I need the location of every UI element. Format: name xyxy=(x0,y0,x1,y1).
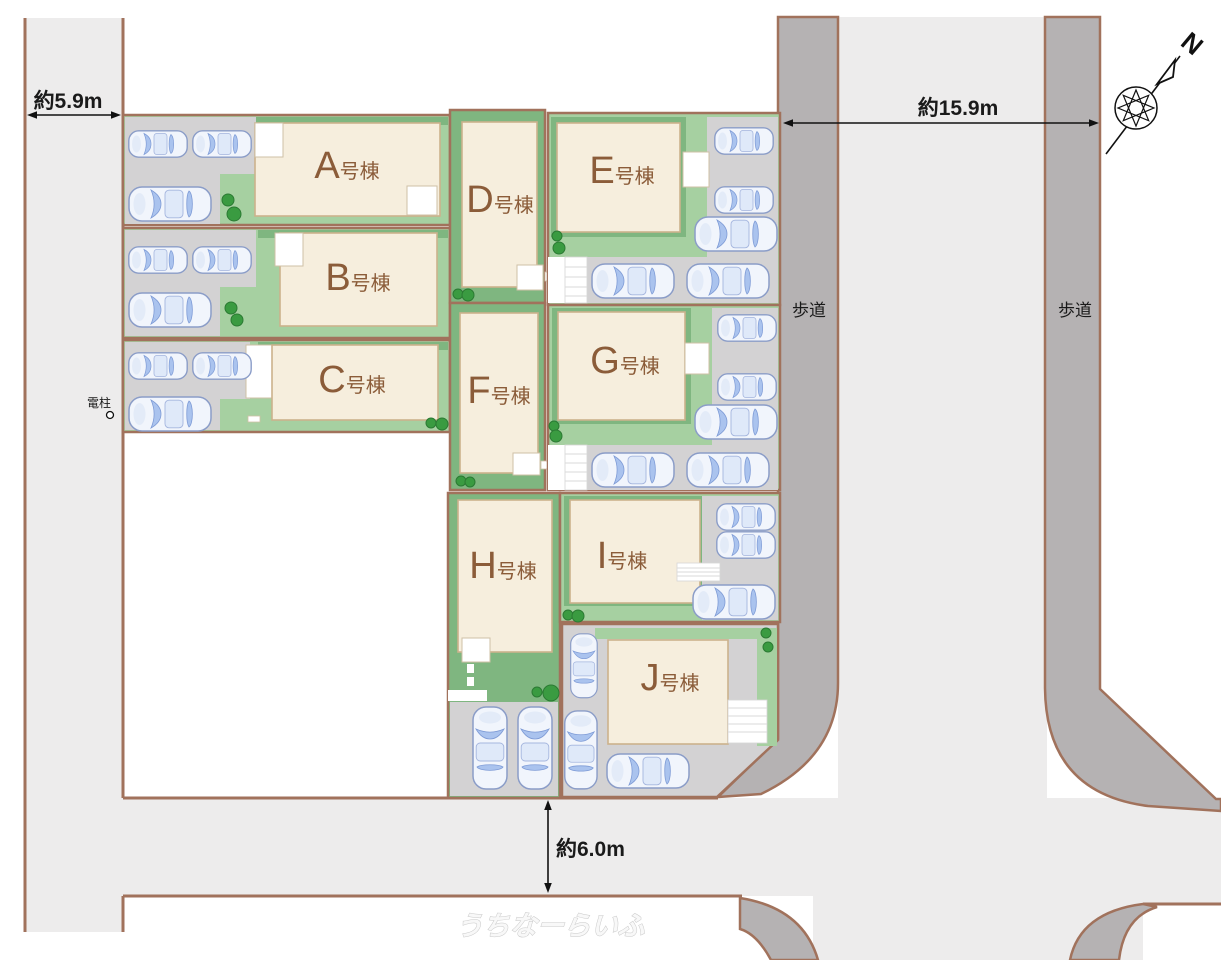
lot-c: C号棟 xyxy=(123,340,450,432)
lot-a: A号棟 xyxy=(123,115,450,225)
tree-icon xyxy=(761,628,771,638)
car-icon xyxy=(717,532,775,558)
tree-icon xyxy=(563,610,573,620)
walkway-step xyxy=(467,664,474,673)
car-icon xyxy=(193,131,251,157)
tree-icon xyxy=(222,194,234,206)
car-icon xyxy=(473,707,507,789)
entrance-porch xyxy=(462,638,490,662)
tree-icon xyxy=(225,302,237,314)
utility-pole-marker xyxy=(107,412,114,419)
car-icon xyxy=(693,585,775,619)
tree-icon xyxy=(532,687,542,697)
lot-g: G号棟 xyxy=(548,305,780,490)
tree-icon xyxy=(543,685,559,701)
car-icon xyxy=(129,187,211,221)
car-icon xyxy=(129,247,187,273)
car-icon xyxy=(695,405,777,439)
walkway-pad xyxy=(448,690,487,701)
driveway xyxy=(548,445,565,490)
watermark-text: うちなーらいふ xyxy=(455,911,646,941)
tree-icon xyxy=(552,231,562,241)
car-icon xyxy=(129,131,187,157)
car-icon xyxy=(695,217,777,251)
north-label: N xyxy=(1175,26,1209,61)
car-icon xyxy=(717,504,775,530)
tree-icon xyxy=(550,430,562,442)
tree-icon xyxy=(227,207,241,221)
utility-pole-label: 電柱 xyxy=(87,395,111,410)
car-icon xyxy=(129,353,187,379)
car-icon xyxy=(129,397,211,431)
tree-icon xyxy=(572,610,584,622)
lot-d: D号棟 xyxy=(450,110,557,303)
car-icon xyxy=(715,187,773,213)
entrance-steps xyxy=(565,257,587,303)
road-left xyxy=(25,18,123,932)
entrance-porch xyxy=(513,453,540,475)
sidewalk-corner-southwest xyxy=(740,898,818,960)
car-icon xyxy=(718,315,776,341)
entrance-porch xyxy=(255,123,283,157)
car-icon xyxy=(718,374,776,400)
road-right-carriageway xyxy=(838,17,1047,960)
entrance-porch xyxy=(275,233,303,266)
sidewalk-label-right: 歩道 xyxy=(1058,301,1092,320)
entrance-step xyxy=(248,416,260,422)
compass-circle xyxy=(1115,87,1157,129)
entrance-steps xyxy=(677,563,720,581)
lot-j: J号棟 xyxy=(562,624,778,797)
road-bottom xyxy=(123,798,1221,896)
car-icon xyxy=(129,293,211,327)
car-icon xyxy=(193,247,251,273)
dimension-label: 約5.9m xyxy=(34,89,103,113)
lawn-strip xyxy=(595,628,777,639)
tree-icon xyxy=(553,242,565,254)
tree-icon xyxy=(453,289,463,299)
north-compass: N xyxy=(1106,26,1209,154)
compass-flag xyxy=(1157,60,1175,84)
lot-i: I号棟 xyxy=(560,493,780,622)
tree-icon xyxy=(456,476,466,486)
tree-icon xyxy=(436,418,448,430)
dimension-label: 約6.0m xyxy=(556,837,625,861)
tree-icon xyxy=(231,314,243,326)
lot-e: E号棟 xyxy=(548,113,780,305)
tree-icon xyxy=(462,289,474,301)
car-icon xyxy=(193,353,251,379)
walkway-step xyxy=(467,677,474,686)
lot-b: B号棟 xyxy=(123,228,450,338)
dimension-label: 約15.9m xyxy=(918,96,999,120)
entrance-steps xyxy=(728,700,767,743)
sidewalk-right-strip xyxy=(1045,17,1221,811)
car-icon xyxy=(592,453,674,487)
sidewalk-label-left: 歩道 xyxy=(792,301,826,320)
site-plan: A号棟 B号棟 C号棟 D号棟 xyxy=(0,0,1221,960)
car-icon xyxy=(565,711,597,789)
car-icon xyxy=(687,264,769,298)
car-icon xyxy=(687,453,769,487)
tree-icon xyxy=(426,418,436,428)
entrance-porch xyxy=(407,186,437,215)
driveway xyxy=(548,257,565,303)
entrance-porch xyxy=(517,265,543,290)
car-icon xyxy=(607,754,689,788)
car-icon xyxy=(571,634,598,698)
entrance-porch xyxy=(685,343,709,374)
tree-icon xyxy=(465,477,475,487)
car-icon xyxy=(592,264,674,298)
lot-f: F号棟 xyxy=(450,303,550,490)
road-bottom-right xyxy=(1143,798,1221,905)
car-icon xyxy=(715,128,773,154)
lot-h: H号棟 xyxy=(448,493,560,798)
tree-icon xyxy=(763,642,773,652)
car-icon xyxy=(518,707,552,789)
entrance-porch xyxy=(683,152,709,187)
site-plan-canvas: A号棟 B号棟 C号棟 D号棟 xyxy=(0,0,1221,960)
entrance-steps xyxy=(565,445,587,490)
tree-icon xyxy=(549,421,559,431)
